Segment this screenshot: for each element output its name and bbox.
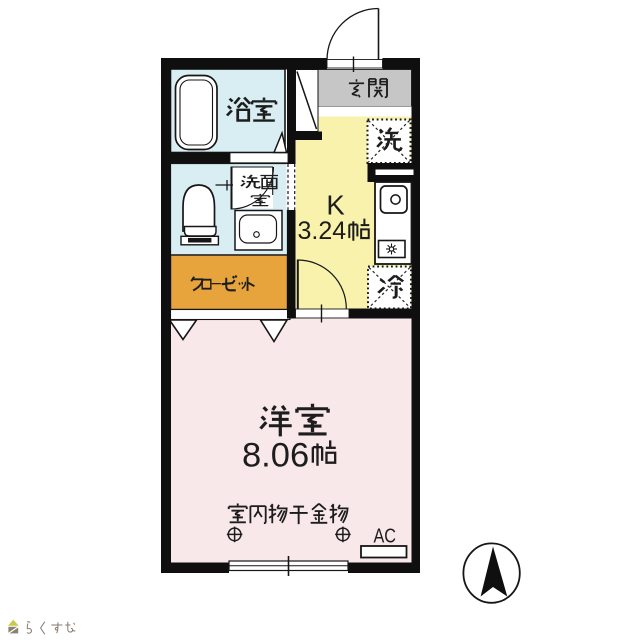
svg-text:8.06: 8.06 xyxy=(242,437,309,475)
svg-text:3.24: 3.24 xyxy=(298,217,347,245)
svg-text:AC: AC xyxy=(374,526,397,548)
